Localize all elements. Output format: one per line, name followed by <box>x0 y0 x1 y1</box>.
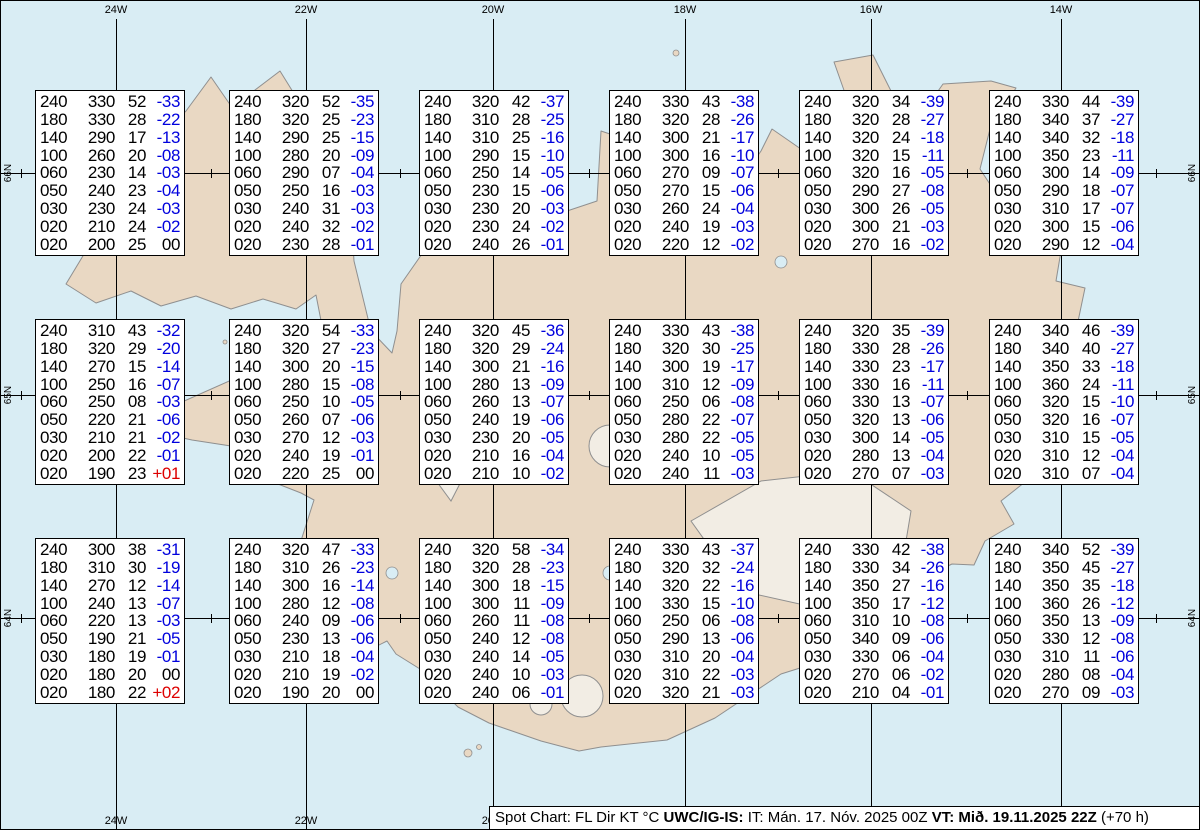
fl-cell: 060 <box>40 164 74 181</box>
speed-cell: 35 <box>879 322 910 339</box>
fl-cell: 020 <box>804 447 838 464</box>
temp-cell: -01 <box>146 447 180 464</box>
station-row: 05029013-06 <box>614 630 754 647</box>
temp-cell: -04 <box>1100 236 1134 253</box>
fl-cell: 240 <box>40 322 74 339</box>
fl-cell: 060 <box>614 164 648 181</box>
station-box: 24032054-3318032027-2314030020-151002801… <box>229 319 379 485</box>
fl-cell: 020 <box>234 218 268 235</box>
speed-cell: 26 <box>1069 595 1100 612</box>
grid-tick <box>1156 614 1157 623</box>
fl-cell: 100 <box>234 595 268 612</box>
dir-cell: 320 <box>74 340 115 357</box>
station-row: 10026020-08 <box>40 147 180 164</box>
speed-cell: 22 <box>689 429 720 446</box>
station-box: 24032052-3518032025-2314029025-151002802… <box>229 90 379 256</box>
speed-cell: 37 <box>1069 111 1100 128</box>
station-row: 03024031-03 <box>234 200 374 217</box>
speed-cell: 12 <box>1069 447 1100 464</box>
temp-cell: -06 <box>340 612 374 629</box>
dir-cell: 350 <box>1028 612 1069 629</box>
station-row: 10028020-09 <box>234 147 374 164</box>
fl-cell: 180 <box>424 340 458 357</box>
dir-cell: 270 <box>838 666 879 683</box>
temp-cell: -04 <box>340 648 374 665</box>
dir-cell: 300 <box>458 358 499 375</box>
dir-cell: 200 <box>74 447 115 464</box>
longitude-label: 24W <box>99 4 133 16</box>
speed-cell: 14 <box>499 164 530 181</box>
fl-cell: 240 <box>994 322 1028 339</box>
grid-tick <box>778 391 779 400</box>
station-row: 05025016-03 <box>234 182 374 199</box>
speed-cell: 17 <box>879 595 910 612</box>
fl-cell: 100 <box>40 376 74 393</box>
dir-cell: 230 <box>458 429 499 446</box>
station-row: 10030011-09 <box>424 595 564 612</box>
dir-cell: 250 <box>648 612 689 629</box>
station-row: 05023015-06 <box>424 182 564 199</box>
dir-cell: 260 <box>458 393 499 410</box>
fl-cell: 140 <box>804 358 838 375</box>
station-row: 18032028-26 <box>614 111 754 128</box>
temp-cell: -06 <box>720 630 754 647</box>
speed-cell: 12 <box>1069 236 1100 253</box>
temp-cell: -14 <box>340 577 374 594</box>
temp-cell: -03 <box>1100 684 1134 701</box>
station-row: 18032027-23 <box>234 340 374 357</box>
grid-tick <box>211 614 212 623</box>
dir-cell: 300 <box>74 541 115 558</box>
speed-cell: 26 <box>879 200 910 217</box>
latitude-label-right: 66N <box>1187 160 1199 186</box>
speed-cell: 06 <box>689 393 720 410</box>
dir-cell: 300 <box>648 358 689 375</box>
station-row: 10024013-07 <box>40 595 180 612</box>
temp-cell: -37 <box>530 93 564 110</box>
fl-cell: 140 <box>994 577 1028 594</box>
speed-cell: 24 <box>115 218 146 235</box>
station-row: 14029025-15 <box>234 129 374 146</box>
speed-cell: 28 <box>879 340 910 357</box>
speed-cell: 21 <box>115 630 146 647</box>
fl-cell: 180 <box>994 559 1028 576</box>
dir-cell: 240 <box>648 218 689 235</box>
station-row: 03027012-03 <box>234 429 374 446</box>
temp-cell: -05 <box>910 164 944 181</box>
speed-cell: 14 <box>499 648 530 665</box>
temp-cell: -09 <box>340 147 374 164</box>
station-row: 24033052-33 <box>40 93 180 110</box>
fl-cell: 030 <box>614 648 648 665</box>
temp-cell: -15 <box>340 358 374 375</box>
station-row: 02032021-03 <box>614 684 754 701</box>
station-row: 18033028-22 <box>40 111 180 128</box>
legend-bar: Spot Chart: FL Dir KT °C UWC/IG-IS: IT: … <box>489 806 1200 830</box>
temp-cell: -04 <box>146 182 180 199</box>
dir-cell: 320 <box>838 93 879 110</box>
temp-cell: -10 <box>720 595 754 612</box>
speed-cell: 20 <box>309 684 340 701</box>
fl-cell: 020 <box>40 447 74 464</box>
station-row: 06024009-06 <box>234 612 374 629</box>
station-row: 02018022+02 <box>40 684 180 701</box>
dir-cell: 190 <box>74 465 115 482</box>
station-row: 10029015-10 <box>424 147 564 164</box>
fl-cell: 100 <box>234 376 268 393</box>
dir-cell: 240 <box>458 684 499 701</box>
temp-cell: -04 <box>720 648 754 665</box>
fl-cell: 020 <box>804 684 838 701</box>
station-row: 02023024-02 <box>424 218 564 235</box>
station-box: 24030038-3118031030-1914027012-141002401… <box>35 538 185 704</box>
station-box: 24033043-3818032030-2514030019-171003101… <box>609 319 759 485</box>
station-row: 02020022-01 <box>40 447 180 464</box>
dir-cell: 310 <box>458 111 499 128</box>
fl-cell: 240 <box>804 541 838 558</box>
temp-cell: -03 <box>530 200 564 217</box>
speed-cell: 34 <box>879 93 910 110</box>
fl-cell: 030 <box>40 200 74 217</box>
dir-cell: 210 <box>458 465 499 482</box>
fl-cell: 030 <box>234 429 268 446</box>
fl-cell: 020 <box>804 236 838 253</box>
temp-cell: -39 <box>1100 541 1134 558</box>
station-row: 18031030-19 <box>40 559 180 576</box>
fl-cell: 240 <box>614 322 648 339</box>
speed-cell: 19 <box>499 411 530 428</box>
station-row: 03024014-05 <box>424 648 564 665</box>
station-box: 24031043-3218032029-2014027015-141002501… <box>35 319 185 485</box>
speed-cell: 07 <box>879 465 910 482</box>
legend-text: Spot Chart: FL Dir KT °C UWC/IG-IS: IT: … <box>495 809 1149 826</box>
temp-cell: 00 <box>146 236 180 253</box>
speed-cell: 10 <box>879 612 910 629</box>
fl-cell: 050 <box>614 411 648 428</box>
dir-cell: 300 <box>1028 218 1069 235</box>
dir-cell: 180 <box>74 684 115 701</box>
temp-cell: -06 <box>720 182 754 199</box>
temp-cell: -16 <box>530 129 564 146</box>
temp-cell: -09 <box>720 376 754 393</box>
fl-cell: 030 <box>40 429 74 446</box>
temp-cell: -16 <box>530 358 564 375</box>
dir-cell: 300 <box>648 147 689 164</box>
temp-cell: -01 <box>530 236 564 253</box>
fl-cell: 050 <box>994 630 1028 647</box>
dir-cell: 310 <box>838 612 879 629</box>
station-row: 10030016-10 <box>614 147 754 164</box>
temp-cell: -38 <box>720 93 754 110</box>
station-row: 14030021-17 <box>614 129 754 146</box>
dir-cell: 290 <box>268 129 309 146</box>
temp-cell: -33 <box>340 322 374 339</box>
station-row: 05033012-08 <box>994 630 1134 647</box>
station-row: 05026007-06 <box>234 411 374 428</box>
legend-segment: IT: Mán. 17. Nóv. 2025 00Z <box>744 809 932 826</box>
station-row: 24033044-39 <box>994 93 1134 110</box>
speed-cell: 24 <box>115 200 146 217</box>
fl-cell: 060 <box>424 164 458 181</box>
dir-cell: 300 <box>268 577 309 594</box>
dir-cell: 320 <box>268 111 309 128</box>
temp-cell: -03 <box>910 218 944 235</box>
temp-cell: -27 <box>910 111 944 128</box>
speed-cell: 23 <box>115 182 146 199</box>
speed-cell: 21 <box>689 684 720 701</box>
dir-cell: 240 <box>458 648 499 665</box>
station-row: 10028012-08 <box>234 595 374 612</box>
temp-cell: -36 <box>530 322 564 339</box>
station-box: 24032045-3618032029-2414030021-161002801… <box>419 319 569 485</box>
temp-cell: -39 <box>1100 322 1134 339</box>
temp-cell: -39 <box>910 322 944 339</box>
temp-cell: -34 <box>530 541 564 558</box>
station-row: 03028022-05 <box>614 429 754 446</box>
station-box: 24034046-3918034040-2714035033-181003602… <box>989 319 1139 485</box>
station-row: 24032035-39 <box>804 322 944 339</box>
speed-cell: 13 <box>499 376 530 393</box>
dir-cell: 330 <box>648 322 689 339</box>
station-row: 06027009-07 <box>614 164 754 181</box>
speed-cell: 10 <box>689 447 720 464</box>
fl-cell: 240 <box>994 541 1028 558</box>
station-row: 03031017-07 <box>994 200 1134 217</box>
speed-cell: 28 <box>689 111 720 128</box>
fl-cell: 020 <box>234 666 268 683</box>
fl-cell: 180 <box>614 559 648 576</box>
fl-cell: 180 <box>40 111 74 128</box>
speed-cell: 45 <box>1069 559 1100 576</box>
speed-cell: 19 <box>309 666 340 683</box>
dir-cell: 350 <box>1028 358 1069 375</box>
fl-cell: 060 <box>614 612 648 629</box>
fl-cell: 100 <box>40 595 74 612</box>
temp-cell: -25 <box>720 340 754 357</box>
dir-cell: 320 <box>648 559 689 576</box>
fl-cell: 050 <box>804 411 838 428</box>
speed-cell: 12 <box>115 577 146 594</box>
dir-cell: 240 <box>648 447 689 464</box>
fl-cell: 140 <box>40 358 74 375</box>
station-row: 02030015-06 <box>994 218 1134 235</box>
dir-cell: 320 <box>268 541 309 558</box>
station-row: 14034032-18 <box>994 129 1134 146</box>
temp-cell: -06 <box>1100 218 1134 235</box>
grid-tick <box>967 614 968 623</box>
dir-cell: 250 <box>458 164 499 181</box>
speed-cell: 12 <box>689 376 720 393</box>
dir-cell: 280 <box>648 429 689 446</box>
temp-cell: 00 <box>340 684 374 701</box>
longitude-label: 20W <box>476 4 510 16</box>
speed-cell: 35 <box>1069 577 1100 594</box>
temp-cell: -27 <box>1100 111 1134 128</box>
temp-cell: -04 <box>530 447 564 464</box>
dir-cell: 320 <box>838 164 879 181</box>
station-row: 18033034-26 <box>804 559 944 576</box>
station-row: 14035033-18 <box>994 358 1134 375</box>
speed-cell: 27 <box>879 577 910 594</box>
dir-cell: 270 <box>838 236 879 253</box>
dir-cell: 180 <box>74 648 115 665</box>
fl-cell: 050 <box>424 630 458 647</box>
fl-cell: 140 <box>424 358 458 375</box>
dir-cell: 350 <box>1028 559 1069 576</box>
temp-cell: -06 <box>1100 648 1134 665</box>
fl-cell: 020 <box>994 218 1028 235</box>
grid-tick <box>400 169 401 178</box>
station-box: 24032047-3318031026-2314030016-141002801… <box>229 538 379 704</box>
station-box: 24032035-3918033028-2614033023-171003301… <box>799 319 949 485</box>
dir-cell: 330 <box>838 541 879 558</box>
speed-cell: 21 <box>115 429 146 446</box>
station-row: 18035045-27 <box>994 559 1134 576</box>
temp-cell: -04 <box>720 200 754 217</box>
temp-cell: -01 <box>146 648 180 665</box>
fl-cell: 020 <box>424 666 458 683</box>
dir-cell: 320 <box>648 684 689 701</box>
speed-cell: 10 <box>499 666 530 683</box>
spot-chart-stage: 24W22W20W18W16W14W24W22W20W66N66N65N65N6… <box>0 0 1200 830</box>
temp-cell: -03 <box>340 429 374 446</box>
legend-segment: UWC/IG-IS: <box>664 809 744 826</box>
dir-cell: 230 <box>458 182 499 199</box>
temp-cell: -04 <box>1100 465 1134 482</box>
station-row: 24030038-31 <box>40 541 180 558</box>
latitude-label-left: 66N <box>3 160 15 186</box>
fl-cell: 030 <box>234 648 268 665</box>
station-row: 14027012-14 <box>40 577 180 594</box>
fl-cell: 020 <box>994 465 1028 482</box>
dir-cell: 320 <box>838 147 879 164</box>
dir-cell: 340 <box>1028 111 1069 128</box>
station-row: 06032015-10 <box>994 393 1134 410</box>
fl-cell: 100 <box>804 147 838 164</box>
temp-cell: -03 <box>720 684 754 701</box>
station-row: 06026013-07 <box>424 393 564 410</box>
grid-tick <box>21 391 22 400</box>
temp-cell: -07 <box>1100 182 1134 199</box>
station-row: 06025006-08 <box>614 393 754 410</box>
speed-cell: 12 <box>309 429 340 446</box>
dir-cell: 280 <box>838 447 879 464</box>
dir-cell: 310 <box>1028 648 1069 665</box>
temp-cell: -02 <box>146 429 180 446</box>
fl-cell: 020 <box>804 666 838 683</box>
station-row: 03030026-05 <box>804 200 944 217</box>
station-box: 24034052-3918035045-2714035035-181003602… <box>989 538 1139 704</box>
temp-cell: -10 <box>720 147 754 164</box>
dir-cell: 300 <box>648 129 689 146</box>
station-row: 03021018-04 <box>234 648 374 665</box>
temp-cell: -27 <box>1100 340 1134 357</box>
dir-cell: 240 <box>458 666 499 683</box>
fl-cell: 240 <box>424 541 458 558</box>
fl-cell: 020 <box>614 447 648 464</box>
speed-cell: 30 <box>115 559 146 576</box>
dir-cell: 330 <box>74 111 115 128</box>
fl-cell: 100 <box>804 595 838 612</box>
dir-cell: 310 <box>648 376 689 393</box>
speed-cell: 52 <box>309 93 340 110</box>
temp-cell: -09 <box>1100 612 1134 629</box>
speed-cell: 20 <box>499 200 530 217</box>
station-row: 02019023+01 <box>40 465 180 482</box>
station-row: 10028015-08 <box>234 376 374 393</box>
grid-tick <box>967 391 968 400</box>
temp-cell: -05 <box>340 393 374 410</box>
temp-cell: -06 <box>340 411 374 428</box>
dir-cell: 230 <box>458 218 499 235</box>
fl-cell: 140 <box>424 577 458 594</box>
fl-cell: 060 <box>424 612 458 629</box>
fl-cell: 030 <box>424 200 458 217</box>
latitude-label-left: 64N <box>3 605 15 631</box>
temp-cell: 00 <box>340 465 374 482</box>
grid-tick <box>211 391 212 400</box>
dir-cell: 320 <box>838 411 879 428</box>
dir-cell: 310 <box>1028 200 1069 217</box>
speed-cell: 13 <box>1069 612 1100 629</box>
longitude-label: 22W <box>289 4 323 16</box>
station-row: 02028013-04 <box>804 447 944 464</box>
dir-cell: 330 <box>1028 93 1069 110</box>
temp-cell: -17 <box>720 358 754 375</box>
fl-cell: 020 <box>804 218 838 235</box>
speed-cell: 15 <box>1069 218 1100 235</box>
speed-cell: 22 <box>689 411 720 428</box>
station-row: 24034046-39 <box>994 322 1134 339</box>
speed-cell: 11 <box>499 595 530 612</box>
station-row: 02028008-04 <box>994 666 1134 683</box>
station-box: 24032042-3718031028-2514031025-161002901… <box>419 90 569 256</box>
fl-cell: 140 <box>614 358 648 375</box>
station-row: 24032058-34 <box>424 541 564 558</box>
temp-cell: -03 <box>340 200 374 217</box>
temp-cell: -14 <box>146 358 180 375</box>
station-row: 24032052-35 <box>234 93 374 110</box>
dir-cell: 300 <box>458 577 499 594</box>
dir-cell: 340 <box>1028 322 1069 339</box>
fl-cell: 030 <box>234 200 268 217</box>
fl-cell: 060 <box>234 612 268 629</box>
dir-cell: 270 <box>74 577 115 594</box>
dir-cell: 280 <box>1028 666 1069 683</box>
fl-cell: 050 <box>40 630 74 647</box>
temp-cell: -08 <box>910 182 944 199</box>
temp-cell: -25 <box>530 111 564 128</box>
speed-cell: 25 <box>499 129 530 146</box>
temp-cell: -07 <box>720 411 754 428</box>
speed-cell: 16 <box>499 447 530 464</box>
dir-cell: 210 <box>74 429 115 446</box>
station-row: 14032022-16 <box>614 577 754 594</box>
temp-cell: -08 <box>1100 630 1134 647</box>
speed-cell: 24 <box>499 218 530 235</box>
fl-cell: 020 <box>234 236 268 253</box>
speed-cell: 54 <box>309 322 340 339</box>
station-row: 06033013-07 <box>804 393 944 410</box>
station-row: 02024032-02 <box>234 218 374 235</box>
speed-cell: 20 <box>115 666 146 683</box>
speed-cell: 21 <box>115 411 146 428</box>
station-row: 05027015-06 <box>614 182 754 199</box>
speed-cell: 21 <box>879 218 910 235</box>
station-row: 02027016-02 <box>804 236 944 253</box>
temp-cell: -04 <box>1100 447 1134 464</box>
speed-cell: 29 <box>499 340 530 357</box>
